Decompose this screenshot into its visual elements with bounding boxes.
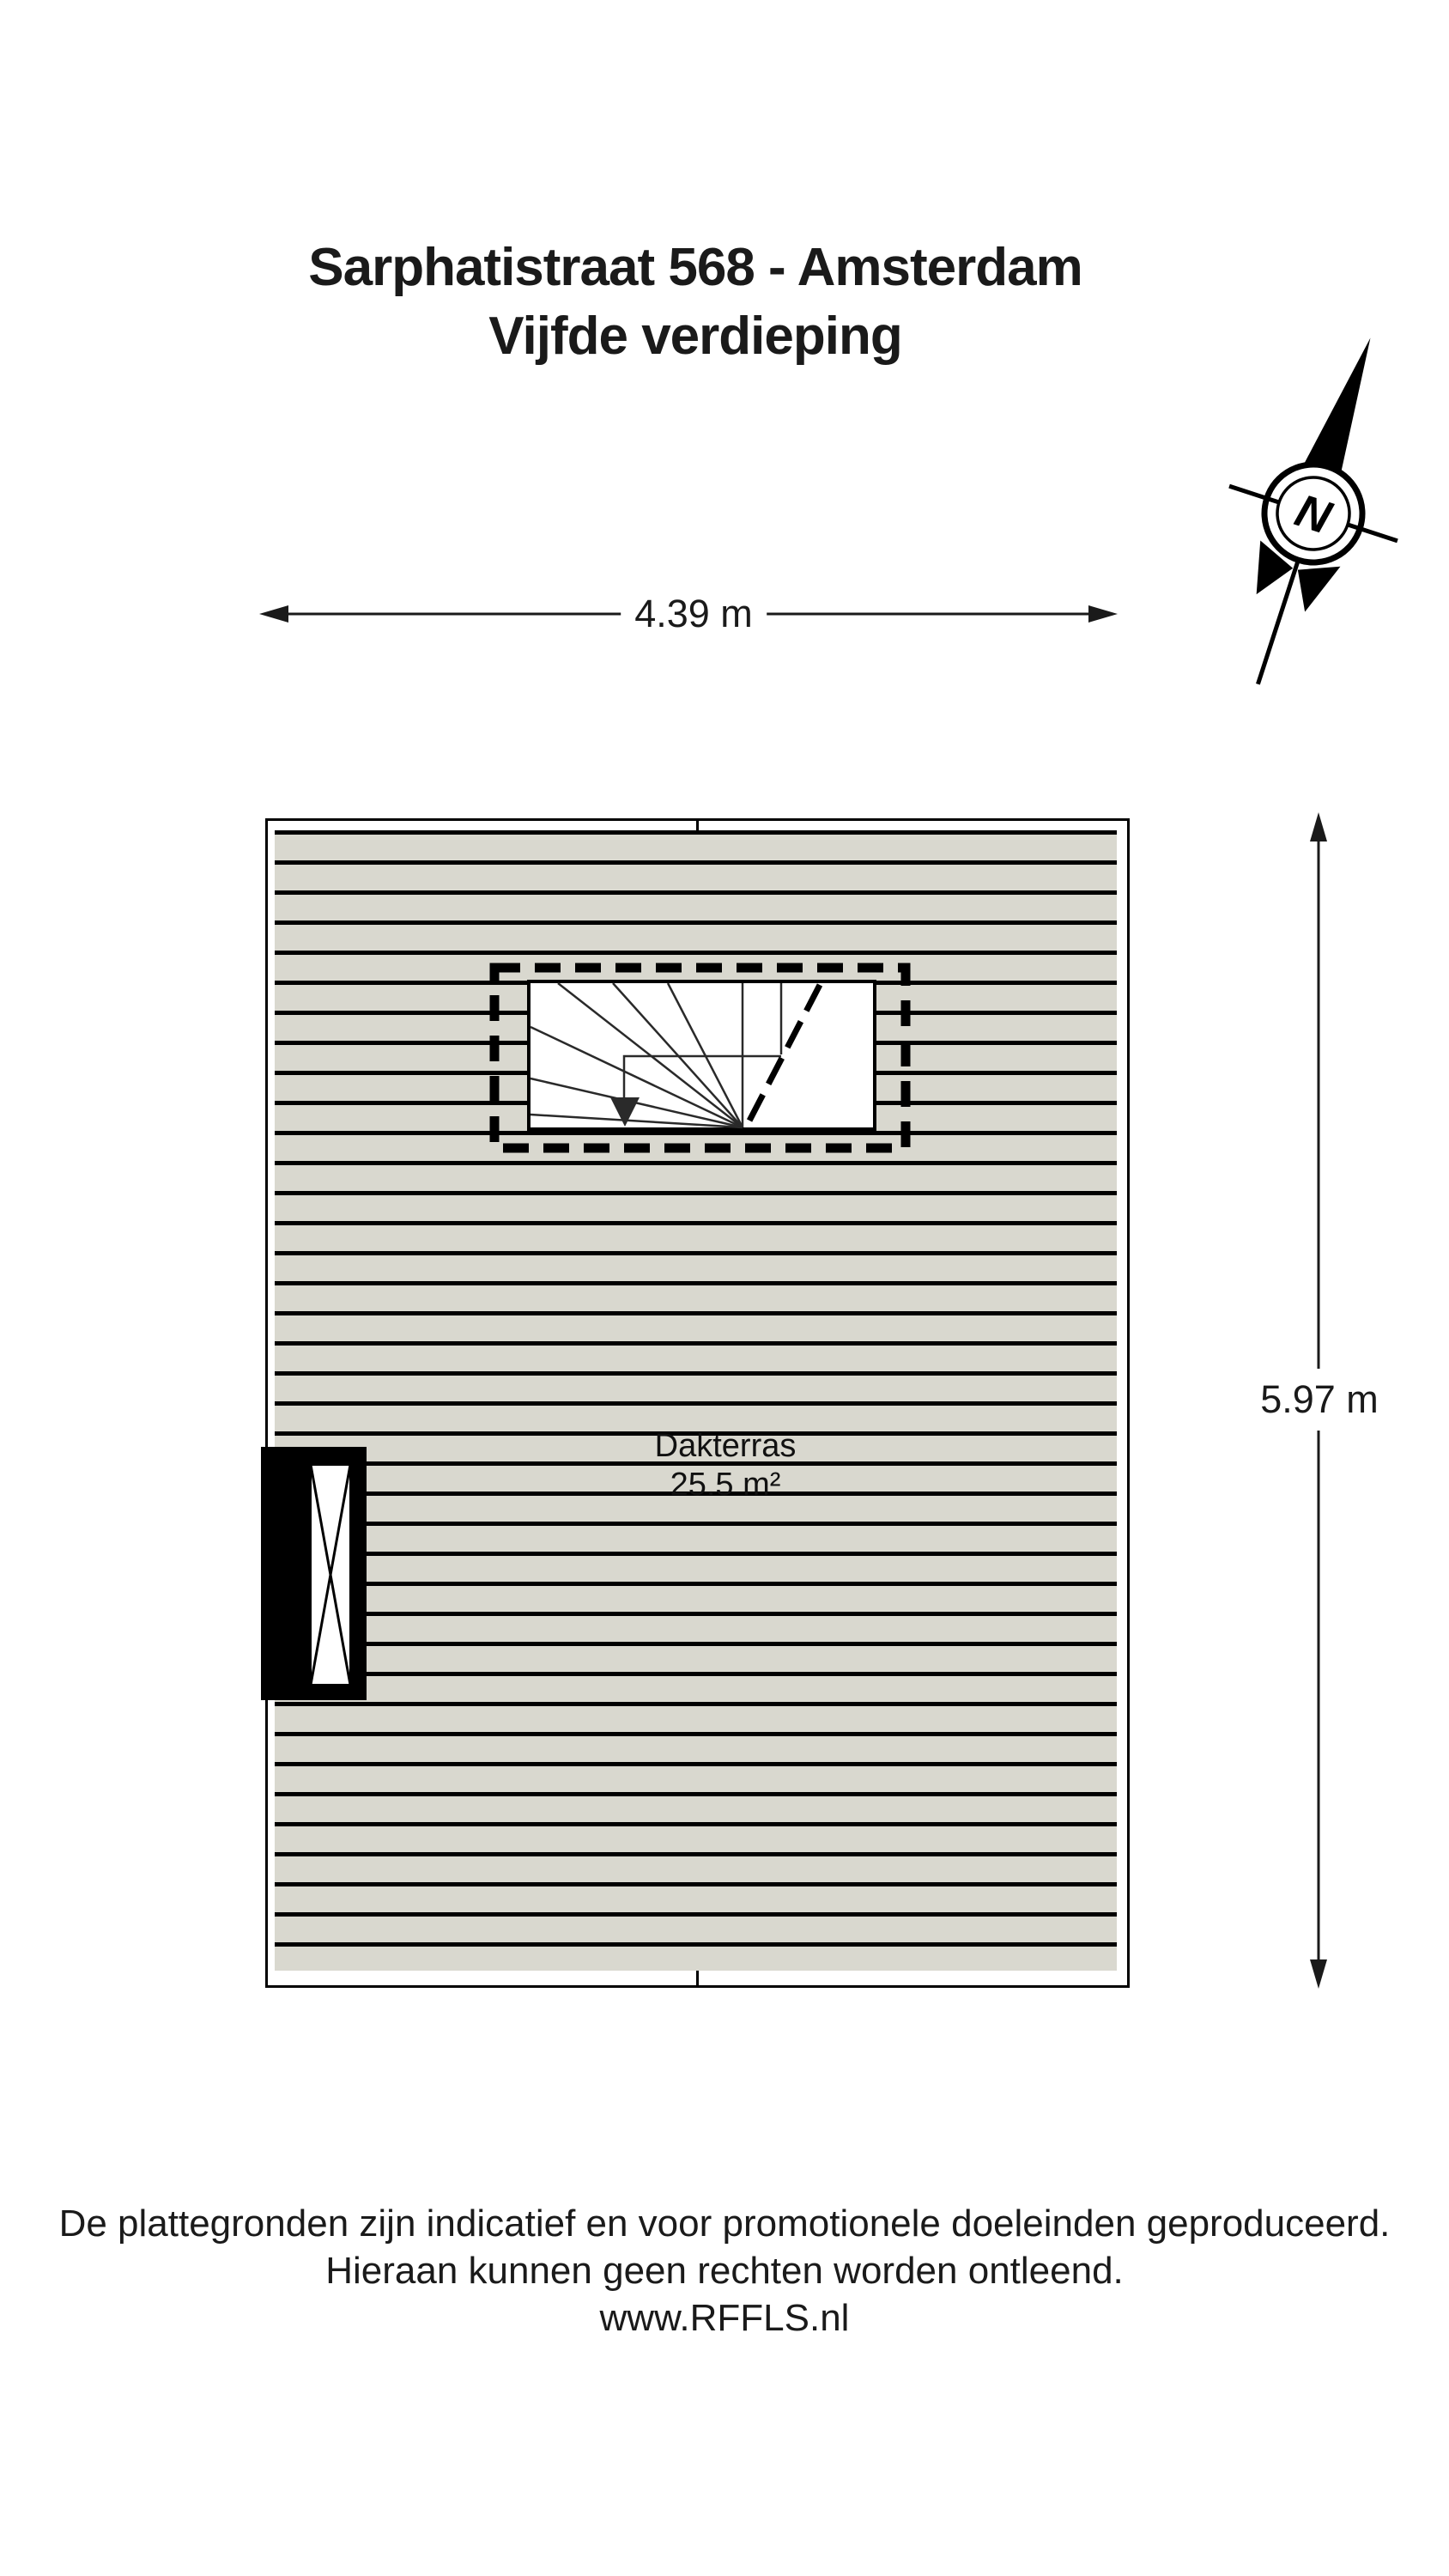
arrow-left-icon: [259, 605, 288, 623]
arrow-right-icon: [1088, 605, 1118, 623]
top-railing-joint: [696, 821, 699, 830]
width-dimension-label: 4.39 m: [621, 590, 767, 638]
bottom-railing-joint: [696, 1971, 699, 1985]
room-area: 25.5 m²: [554, 1466, 897, 1504]
page-title: Sarphatistraat 568 - Amsterdam Vijfde ve…: [0, 234, 1391, 371]
compass-needle-north: [1302, 331, 1384, 480]
disclaimer: De plattegronden zijn indicatief en voor…: [0, 2200, 1449, 2342]
arrow-down-icon: [1310, 1959, 1327, 1989]
room-label: Dakterras 25.5 m²: [554, 1427, 897, 1504]
room-name: Dakterras: [554, 1427, 897, 1466]
title-address: Sarphatistraat 568 - Amsterdam: [0, 234, 1391, 302]
compass-icon: N: [1197, 305, 1438, 708]
stairs-symbol: [481, 955, 927, 1161]
title-floor: Vijfde verdieping: [0, 302, 1391, 371]
roof-hatch-glass: [261, 1447, 367, 1700]
disclaimer-website: www.RFFLS.nl: [0, 2294, 1449, 2342]
disclaimer-line-1: De plattegronden zijn indicatief en voor…: [0, 2200, 1449, 2247]
floorplan-page: Sarphatistraat 568 - Amsterdam Vijfde ve…: [0, 0, 1449, 2576]
arrow-up-icon: [1310, 812, 1327, 841]
disclaimer-line-2: Hieraan kunnen geen rechten worden ontle…: [0, 2247, 1449, 2294]
height-dimension-label: 5.97 m: [1253, 1369, 1385, 1431]
roof-hatch: [261, 1447, 367, 1700]
